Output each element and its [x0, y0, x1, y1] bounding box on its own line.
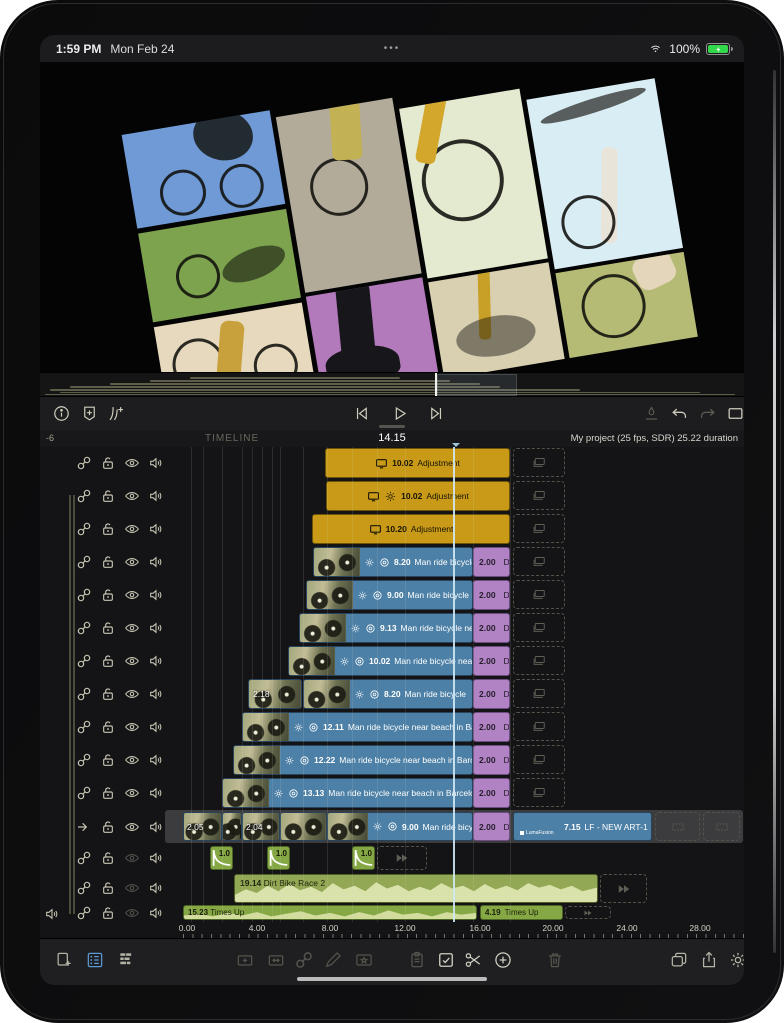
music-clip[interactable]: 19.14 Dirt Bike Race 2 — [234, 874, 598, 903]
main-track-clip[interactable]: 9.00Man ride bicycle — [327, 812, 473, 841]
time-ruler[interactable]: 0.00 4.00 8.00 12.00 16.00 20.00 24.00 2… — [40, 922, 744, 938]
link-icon[interactable] — [76, 653, 92, 669]
clip-duration: 8.20 — [394, 557, 411, 567]
gear-icon — [354, 689, 365, 700]
timeline-header: -6 TIMELINE 14.15 My project (25 fps, SD… — [40, 430, 744, 447]
clip-stack-icon — [530, 487, 548, 505]
guide-line — [303, 447, 304, 922]
track-header-v2 — [76, 744, 164, 775]
transition-clip[interactable]: 2.00D — [473, 812, 510, 841]
clip-stack-icon — [530, 751, 548, 769]
eye-icon[interactable] — [124, 554, 140, 570]
guide-line — [473, 447, 474, 922]
ruler-label: 4.00 — [249, 923, 266, 933]
eye-icon[interactable] — [124, 785, 140, 801]
guide-line — [280, 447, 281, 922]
poster-frame-icon[interactable] — [80, 404, 99, 423]
guide-line — [242, 447, 243, 922]
monitor-icon — [367, 490, 380, 503]
delete-trash-icon[interactable] — [545, 950, 565, 970]
bottom-toolbar — [40, 938, 744, 985]
clip-name: Man ride bicycle — [423, 822, 473, 832]
transition-clip[interactable]: 2.00D — [473, 745, 510, 775]
clip-name: LF - NEW ART-1 — [585, 822, 648, 832]
transport-bar — [40, 397, 744, 430]
eye-icon[interactable] — [124, 752, 140, 768]
link-icon[interactable] — [76, 521, 92, 537]
eye-icon[interactable] — [124, 455, 140, 471]
skip-back-button[interactable] — [352, 404, 371, 423]
adjustment-clip[interactable]: 10.02Adjustment — [326, 481, 510, 511]
collage-cell — [399, 89, 548, 279]
overwrite-clip-icon[interactable] — [266, 950, 286, 970]
main-track-clip[interactable] — [222, 812, 242, 841]
collage-cell — [276, 98, 422, 293]
video-clip[interactable]: 10.02Man ride bicycle near — [288, 646, 473, 676]
lock-icon[interactable] — [100, 653, 116, 669]
undo-button[interactable] — [670, 404, 689, 423]
double-play-icon — [582, 907, 594, 919]
lumafusion-watermark: LumaFusion — [520, 830, 554, 836]
timeline-tracks: 10.02Adjustment 10.02Adjustment 10.20Adj… — [40, 447, 744, 922]
guide-line — [272, 447, 273, 922]
guide-line — [377, 447, 378, 922]
lock-icon[interactable] — [100, 620, 116, 636]
clip-duration: 4.19 — [485, 908, 501, 917]
clip-duration: 12.22 — [314, 755, 335, 765]
video-collage — [122, 62, 708, 372]
link-icon[interactable] — [76, 752, 92, 768]
clip-placeholder[interactable] — [513, 547, 565, 576]
track-header-v7 — [76, 579, 164, 610]
eye-icon[interactable] — [124, 905, 140, 921]
fullscreen-button[interactable] — [726, 404, 744, 423]
audio-level-slider[interactable] — [69, 495, 75, 914]
effects-clip-icon[interactable] — [354, 950, 374, 970]
clipboard-icon[interactable] — [407, 950, 427, 970]
clip-placeholder[interactable] — [513, 646, 565, 675]
program-monitor[interactable] — [40, 62, 744, 372]
battery-charging-icon — [706, 43, 730, 55]
lock-icon[interactable] — [100, 785, 116, 801]
guide-line — [405, 447, 406, 922]
speaker-icon[interactable] — [148, 455, 164, 471]
clip-stack-icon — [530, 652, 548, 670]
clip-stack-icon — [530, 553, 548, 571]
main-track-clip[interactable]: 2.04 — [242, 812, 280, 841]
multitask-indicator[interactable]: ••• — [384, 43, 401, 54]
clip-stack-icon — [530, 454, 548, 472]
split-scissors-icon[interactable] — [463, 950, 483, 970]
clock-label: 1:59 PM — [56, 42, 101, 56]
overwrite-arrow-icon[interactable] — [76, 819, 92, 835]
clip-stack-icon — [530, 718, 548, 736]
clip-name: Man ride bicycle — [405, 689, 466, 699]
clip-duration: 9.00 — [387, 590, 404, 600]
clip-stack-icon — [530, 685, 548, 703]
battery-percent-label: 100% — [669, 42, 700, 56]
transition-clip[interactable]: 2.00D — [473, 646, 510, 676]
guide-line — [510, 447, 511, 922]
clip-thumbnail — [328, 813, 368, 840]
clip-placeholder[interactable] — [703, 812, 740, 841]
clip-name: Times Up — [210, 908, 244, 917]
ruler-label: 24.00 — [616, 923, 637, 933]
gear-icon — [364, 557, 375, 568]
link-icon[interactable] — [76, 620, 92, 636]
collage-cell — [428, 262, 565, 372]
eye-icon[interactable] — [124, 653, 140, 669]
clip-name: Man ride bicycle near beach in Barcelo — [328, 788, 473, 798]
track-header-v10 — [76, 480, 164, 511]
ruler-label: 16.00 — [469, 923, 490, 933]
lock-icon[interactable] — [100, 488, 116, 504]
clip-stack-icon — [530, 520, 548, 538]
timeline-playhead[interactable] — [453, 447, 455, 922]
track-header-v11 — [76, 447, 164, 478]
link-icon[interactable] — [76, 686, 92, 702]
track-header-v6 — [76, 612, 164, 643]
clip-placeholder[interactable] — [513, 613, 565, 642]
clip-placeholder[interactable] — [513, 448, 565, 477]
clip-duration: 7.15 — [564, 822, 581, 832]
video-clip[interactable]: 8.20Man ride bicycle — [303, 679, 473, 709]
speaker-icon[interactable] — [148, 785, 164, 801]
collage-cell — [122, 110, 286, 228]
clip-placeholder[interactable] — [655, 812, 700, 841]
link-icon[interactable] — [76, 850, 92, 866]
timeline-minimap[interactable] — [40, 372, 744, 397]
ruler-label: 28.00 — [689, 923, 710, 933]
speaker-icon[interactable] — [148, 620, 164, 636]
track-header-a1 — [76, 844, 164, 872]
speed-icon — [299, 755, 310, 766]
track-header-v1 — [76, 777, 164, 808]
audio-stinger-clip[interactable]: 1.0 — [352, 846, 375, 870]
gear-icon — [357, 590, 368, 601]
clip-name: Man ride bicycle — [415, 557, 473, 567]
speaker-icon[interactable] — [148, 587, 164, 603]
speed-icon — [308, 722, 319, 733]
clip-duration: 19.14 — [240, 878, 261, 888]
eye-icon[interactable] — [124, 587, 140, 603]
select-icon[interactable] — [436, 950, 456, 970]
clip-thumbnail — [307, 581, 353, 609]
meter-db-label: -6 — [46, 433, 54, 443]
clip-duration: 2.18 — [249, 680, 301, 708]
timeline-title: TIMELINE — [205, 433, 259, 444]
guide-line — [191, 447, 192, 922]
color-tool-icon[interactable] — [642, 404, 661, 423]
home-indicator[interactable] — [297, 977, 487, 981]
lock-icon[interactable] — [100, 521, 116, 537]
track-header-v4 — [76, 678, 164, 709]
eye-icon[interactable] — [124, 719, 140, 735]
transition-clip[interactable]: 2.00D — [473, 613, 510, 643]
audio-fx-clip[interactable]: 15.23 Times Up — [183, 905, 477, 920]
eye-icon[interactable] — [124, 488, 140, 504]
clip-stack-icon — [530, 619, 548, 637]
clip-duration: 13.13 — [303, 788, 324, 798]
clip-name: Adjustment — [426, 491, 469, 501]
audio-meter-add-icon[interactable] — [106, 404, 125, 423]
collage-cell — [138, 209, 301, 323]
speaker-icon[interactable] — [148, 653, 164, 669]
clip-placeholder[interactable] — [513, 778, 565, 807]
lock-icon[interactable] — [100, 905, 116, 921]
link-icon[interactable] — [76, 880, 92, 896]
clip-duration: 10.02 — [392, 458, 413, 468]
clip-duration: 8.20 — [384, 689, 401, 699]
collage-cell — [306, 277, 440, 372]
link-icon[interactable] — [76, 905, 92, 921]
clip-duration: 10.20 — [386, 524, 407, 534]
dotted-rect-icon — [713, 818, 731, 836]
link-icon[interactable] — [76, 488, 92, 504]
redo-button[interactable] — [698, 404, 717, 423]
current-time-label: 14.15 — [378, 432, 406, 444]
audio-stinger-clip[interactable]: 1.0 — [267, 846, 290, 870]
speed-icon — [288, 788, 299, 799]
clip-thumbnail — [243, 713, 289, 741]
guide-line — [222, 447, 223, 922]
eye-icon[interactable] — [124, 819, 140, 835]
share-export-icon[interactable] — [699, 950, 719, 970]
speaker-icon[interactable] — [148, 521, 164, 537]
track-header-v5 — [76, 645, 164, 676]
video-clip[interactable]: 13.13Man ride bicycle near beach in Barc… — [222, 778, 473, 808]
clip-name: Man ride bicycle n — [408, 590, 473, 600]
double-play-icon — [393, 849, 411, 867]
clip-thumbnail — [223, 813, 241, 840]
gear-icon — [384, 490, 397, 503]
lock-icon[interactable] — [100, 880, 116, 896]
eye-icon[interactable] — [124, 686, 140, 702]
video-clip[interactable]: 2.18 — [248, 679, 302, 709]
clip-placeholder[interactable] — [513, 679, 565, 708]
info-icon[interactable] — [52, 404, 71, 423]
title-clip[interactable]: 7.15LF - NEW ART-1 LumaFusion — [513, 812, 652, 841]
clip-stack-icon — [530, 784, 548, 802]
ruler-label: 12.00 — [394, 923, 415, 933]
speaker-icon[interactable] — [148, 554, 164, 570]
speed-icon — [387, 821, 398, 832]
dotted-rect-icon — [669, 818, 687, 836]
lock-icon[interactable] — [100, 587, 116, 603]
track-header-a2 — [76, 873, 164, 903]
clip-thumbnail — [289, 647, 335, 675]
speaker-icon[interactable] — [148, 819, 164, 835]
clip-stack-icon — [530, 586, 548, 604]
eye-icon[interactable] — [124, 880, 140, 896]
guide-line — [203, 447, 204, 922]
clip-thumbnail — [300, 614, 346, 642]
gear-icon — [273, 788, 284, 799]
timeline-layout-icon[interactable] — [117, 950, 137, 970]
collage-cell — [526, 78, 683, 269]
import-media-icon[interactable] — [54, 950, 74, 970]
speed-icon — [365, 623, 376, 634]
lock-icon[interactable] — [100, 455, 116, 471]
speaker-icon[interactable] — [148, 719, 164, 735]
gear-icon — [339, 656, 350, 667]
lock-icon[interactable] — [100, 819, 116, 835]
insert-clip-icon[interactable] — [235, 950, 255, 970]
project-info-label: My project (25 fps, SDR) 25.22 duration — [571, 433, 738, 444]
clip-thumbnail — [314, 548, 360, 576]
clip-thumbnail — [234, 746, 280, 774]
track-header-v9 — [76, 513, 164, 544]
clip-duration: 9.13 — [380, 623, 397, 633]
clip-placeholder[interactable] — [513, 580, 565, 609]
clip-name: Adjustment — [411, 524, 454, 534]
video-clip[interactable]: 9.13Man ride bicycle nea — [299, 613, 473, 643]
audio-placeholder[interactable] — [600, 874, 647, 903]
track-header-a3 — [76, 904, 164, 922]
speaker-icon[interactable] — [148, 752, 164, 768]
clip-placeholder[interactable] — [513, 481, 565, 510]
eye-icon[interactable] — [124, 521, 140, 537]
transition-clip[interactable]: 2.00D — [473, 679, 510, 709]
guide-line — [327, 447, 328, 922]
video-clip[interactable]: 8.20Man ride bicycle — [313, 547, 473, 577]
lock-icon[interactable] — [100, 686, 116, 702]
link-icon[interactable] — [76, 785, 92, 801]
transition-clip[interactable]: 2.00D — [473, 547, 510, 577]
source-library-icon[interactable] — [85, 950, 105, 970]
monitor-icon — [369, 523, 382, 536]
speaker-icon[interactable] — [148, 905, 164, 921]
clip-duration: 2.04 — [243, 813, 279, 840]
speaker-icon[interactable] — [148, 850, 164, 866]
adjustment-clip[interactable]: 10.20Adjustment — [312, 514, 510, 544]
add-icon[interactable] — [493, 950, 513, 970]
minimap-playhead — [435, 373, 437, 397]
guide-line — [352, 447, 353, 922]
video-clip[interactable]: 12.11Man ride bicycle near beach in Ba — [242, 712, 473, 742]
guide-line — [252, 447, 253, 922]
gear-icon — [284, 755, 295, 766]
track-header-v8 — [76, 546, 164, 577]
ruler-label: 0.00 — [179, 923, 196, 933]
link-icon[interactable] — [76, 554, 92, 570]
link-clips-icon[interactable] — [294, 950, 314, 970]
guide-line — [262, 447, 263, 922]
audio-fx-clip[interactable]: 4.19Times Up — [480, 905, 563, 920]
ruler-label: 8.00 — [322, 923, 339, 933]
speed-icon — [369, 689, 380, 700]
transition-clip[interactable]: 2.00D — [473, 580, 510, 610]
speed-icon — [379, 557, 390, 568]
video-clip[interactable]: 12.22Man ride bicycle near beach in Barc — [233, 745, 473, 775]
frame-edge-highlight — [773, 70, 776, 953]
screen: 1:59 PM Mon Feb 24 ••• 100% — [40, 35, 744, 985]
status-bar: 1:59 PM Mon Feb 24 ••• 100% — [40, 35, 744, 62]
lock-icon[interactable] — [100, 850, 116, 866]
video-clip[interactable]: 9.00Man ride bicycle n — [306, 580, 473, 610]
eye-icon[interactable] — [124, 850, 140, 866]
speaker-icon[interactable] — [148, 880, 164, 896]
collage-cell — [555, 252, 697, 358]
edit-pencil-icon[interactable] — [323, 950, 343, 970]
double-play-icon — [615, 880, 633, 898]
clip-duration: 10.02 — [369, 656, 390, 666]
track-header-v3 — [76, 711, 164, 742]
device-frame: 1:59 PM Mon Feb 24 ••• 100% — [0, 0, 784, 1023]
track-header-main — [76, 811, 164, 842]
transition-clip[interactable]: 2.00D — [473, 712, 510, 742]
clip-placeholder[interactable] — [513, 514, 565, 543]
minimap-window[interactable] — [437, 374, 517, 396]
link-icon[interactable] — [76, 719, 92, 735]
lock-icon[interactable] — [100, 554, 116, 570]
transition-clip[interactable]: 2.00D — [473, 778, 510, 808]
master-speaker-icon[interactable] — [44, 906, 60, 922]
panel-resize-handle[interactable] — [379, 425, 405, 428]
clip-placeholder[interactable] — [513, 712, 565, 741]
link-icon[interactable] — [76, 455, 92, 471]
speed-icon — [354, 656, 365, 667]
wifi-icon — [648, 43, 663, 55]
eye-icon[interactable] — [124, 620, 140, 636]
skip-forward-button[interactable] — [427, 404, 446, 423]
clip-name: Man ride bicycle nea — [401, 623, 473, 633]
clip-placeholder[interactable] — [513, 745, 565, 774]
lock-icon[interactable] — [100, 719, 116, 735]
ruler-label: 20.00 — [542, 923, 563, 933]
audio-placeholder[interactable] — [565, 906, 611, 919]
settings-gear-icon[interactable] — [728, 950, 744, 970]
play-button[interactable] — [390, 404, 409, 423]
clip-name: Man ride bicycle near — [394, 656, 473, 666]
lock-icon[interactable] — [100, 752, 116, 768]
audio-placeholder[interactable] — [377, 846, 427, 870]
link-icon[interactable] — [76, 587, 92, 603]
speaker-icon[interactable] — [148, 686, 164, 702]
date-label: Mon Feb 24 — [110, 42, 174, 56]
speaker-icon[interactable] — [148, 488, 164, 504]
project-manager-icon[interactable] — [669, 950, 689, 970]
